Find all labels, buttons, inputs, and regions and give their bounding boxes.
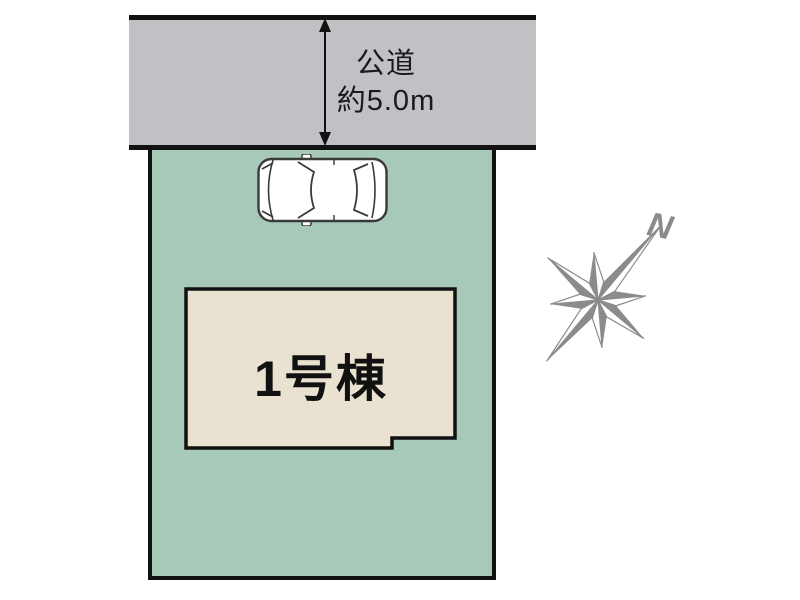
building-label: 1号棟: [184, 339, 458, 411]
car-top-view-icon: [256, 154, 390, 226]
road-label: 公道 約5.0m: [325, 46, 447, 120]
road-name-text: 公道: [325, 46, 447, 83]
compass-north-letter: N: [644, 205, 677, 248]
road-width-text: 約5.0m: [325, 83, 447, 120]
site-plan-diagram: 公道 約5.0m 1号棟: [0, 0, 800, 600]
compass-rose-icon: N: [528, 200, 703, 375]
